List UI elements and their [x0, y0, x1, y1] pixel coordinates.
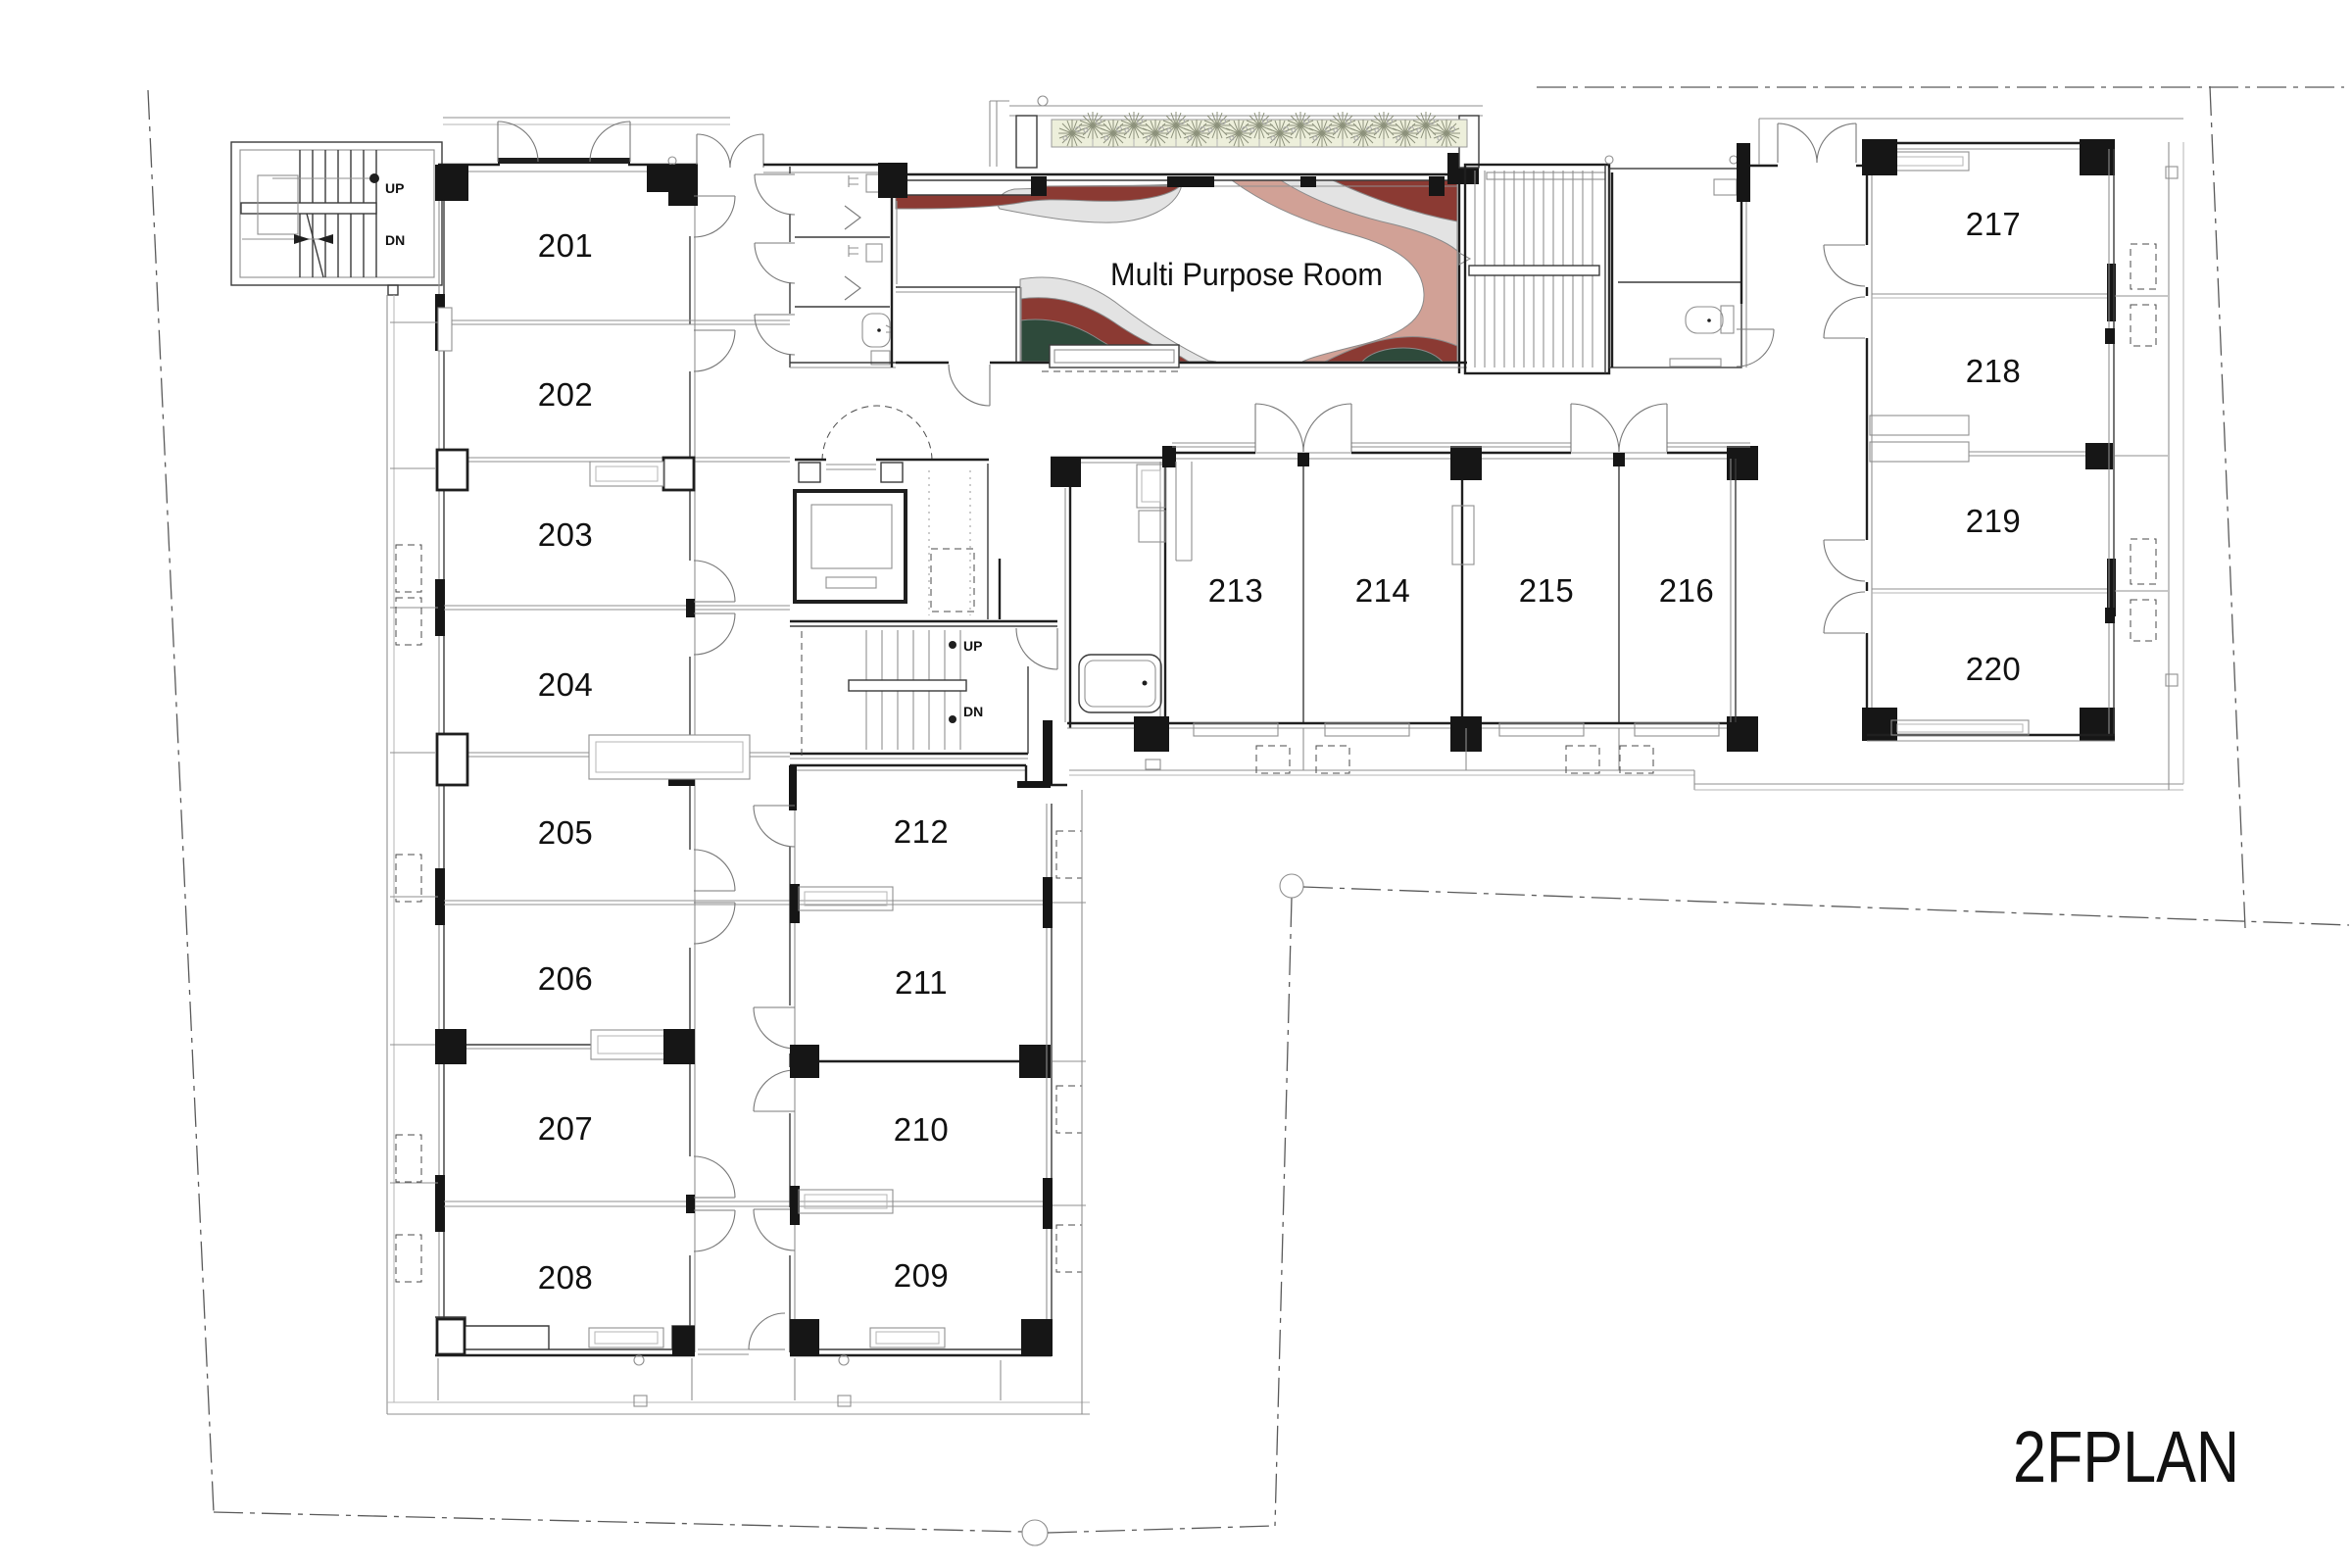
svg-text:220: 220 — [1966, 651, 2022, 687]
svg-text:211: 211 — [895, 964, 948, 1001]
svg-text:207: 207 — [538, 1110, 594, 1147]
svg-text:210: 210 — [894, 1111, 950, 1148]
svg-text:219: 219 — [1966, 503, 2022, 539]
svg-text:UP: UP — [963, 638, 982, 654]
svg-text:204: 204 — [538, 666, 594, 703]
svg-text:DN: DN — [963, 704, 983, 719]
svg-text:214: 214 — [1355, 572, 1411, 609]
svg-text:209: 209 — [894, 1257, 950, 1294]
svg-text:205: 205 — [538, 814, 594, 851]
svg-text:215: 215 — [1519, 572, 1575, 609]
svg-text:Multi Purpose Room: Multi Purpose Room — [1110, 257, 1383, 292]
svg-text:212: 212 — [894, 813, 950, 850]
svg-text:UP: UP — [385, 180, 404, 196]
svg-text:2FPLAN: 2FPLAN — [2013, 1416, 2239, 1497]
svg-text:217: 217 — [1966, 206, 2022, 242]
svg-text:201: 201 — [538, 227, 594, 264]
svg-text:218: 218 — [1966, 353, 2022, 389]
svg-text:DN: DN — [385, 232, 405, 248]
svg-text:213: 213 — [1208, 572, 1264, 609]
svg-text:202: 202 — [538, 376, 594, 413]
svg-text:216: 216 — [1659, 572, 1715, 609]
svg-text:208: 208 — [538, 1259, 594, 1296]
svg-text:206: 206 — [538, 960, 594, 997]
svg-text:203: 203 — [538, 516, 594, 553]
